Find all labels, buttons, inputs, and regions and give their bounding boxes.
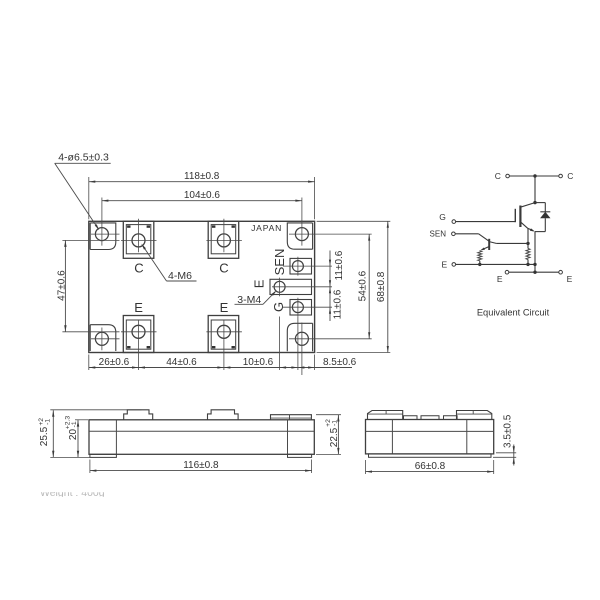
svg-text:C: C (219, 260, 228, 275)
svg-text:26±0.6: 26±0.6 (99, 357, 130, 368)
svg-text:Equivalent Circuit: Equivalent Circuit (477, 307, 550, 317)
svg-text:C: C (567, 171, 573, 181)
svg-text:47±0.6: 47±0.6 (57, 270, 68, 301)
svg-text:66±0.8: 66±0.8 (415, 461, 446, 472)
svg-text:3.5±0.5: 3.5±0.5 (503, 414, 514, 448)
svg-text:-1: -1 (332, 420, 339, 426)
svg-text:22.5: 22.5 (329, 427, 340, 447)
svg-text:E: E (220, 300, 229, 315)
svg-text:G: G (271, 302, 286, 312)
svg-text:E: E (134, 300, 143, 315)
svg-text:104±0.6: 104±0.6 (184, 190, 221, 201)
svg-text:11±0.6: 11±0.6 (333, 289, 344, 319)
svg-text:E: E (567, 274, 573, 284)
svg-text:JAPAN: JAPAN (251, 223, 282, 233)
svg-text:E: E (441, 259, 447, 269)
svg-text:44±0.6: 44±0.6 (166, 357, 197, 368)
svg-text:4-ø6.5±0.3: 4-ø6.5±0.3 (58, 152, 109, 164)
svg-text:-1: -1 (44, 419, 51, 425)
svg-text:25.5: 25.5 (39, 426, 50, 446)
svg-text:G: G (439, 212, 446, 222)
svg-text:SEN: SEN (272, 249, 287, 276)
svg-text:C: C (495, 171, 501, 181)
svg-text:4-M6: 4-M6 (168, 270, 192, 282)
svg-text:116±0.8: 116±0.8 (183, 460, 219, 471)
svg-text:54±0.6: 54±0.6 (358, 270, 369, 301)
svg-text:8.5±0.6: 8.5±0.6 (323, 357, 357, 368)
svg-text:118±0.8: 118±0.8 (184, 171, 220, 182)
svg-text:E: E (252, 279, 267, 288)
svg-text:11±0.6: 11±0.6 (334, 250, 345, 280)
svg-text:20: 20 (68, 429, 79, 441)
svg-text:E: E (497, 274, 503, 284)
svg-text:10±0.6: 10±0.6 (243, 357, 274, 368)
svg-text:Weight : 400g: Weight : 400g (40, 487, 105, 499)
svg-text:68±0.8: 68±0.8 (376, 271, 387, 302)
svg-text:-1: -1 (71, 421, 78, 427)
svg-text:C: C (134, 260, 143, 275)
svg-text:SEN: SEN (430, 230, 447, 239)
